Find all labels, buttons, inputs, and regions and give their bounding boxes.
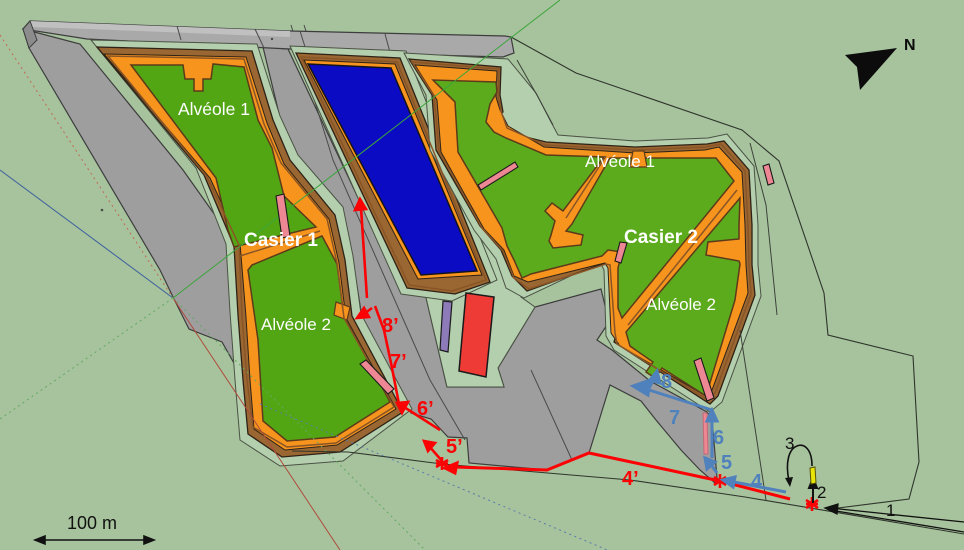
svg-text:100 m: 100 m	[67, 513, 117, 533]
svg-text:5: 5	[721, 452, 732, 474]
svg-text:6’: 6’	[417, 398, 434, 420]
svg-text:4: 4	[751, 471, 763, 493]
svg-text:6: 6	[713, 427, 724, 449]
svg-text:Alvéole 2: Alvéole 2	[646, 295, 716, 314]
svg-text:8’: 8’	[382, 315, 399, 337]
svg-text:Alvéole 2: Alvéole 2	[261, 315, 331, 334]
svg-text:Casier 1: Casier 1	[244, 230, 318, 251]
svg-text:2: 2	[817, 483, 826, 502]
svg-text:Casier 2: Casier 2	[624, 227, 698, 248]
svg-text:8: 8	[661, 371, 672, 393]
svg-text:Alvéole 1: Alvéole 1	[178, 99, 250, 119]
svg-text:Alvéole 1: Alvéole 1	[585, 152, 655, 171]
svg-text:5’: 5’	[446, 436, 463, 458]
svg-text:4’: 4’	[622, 468, 639, 490]
svg-text:3: 3	[785, 434, 794, 453]
svg-text:7’: 7’	[390, 351, 407, 373]
svg-text:N: N	[904, 37, 916, 54]
svg-text:1: 1	[886, 501, 895, 520]
svg-text:7: 7	[669, 407, 680, 429]
